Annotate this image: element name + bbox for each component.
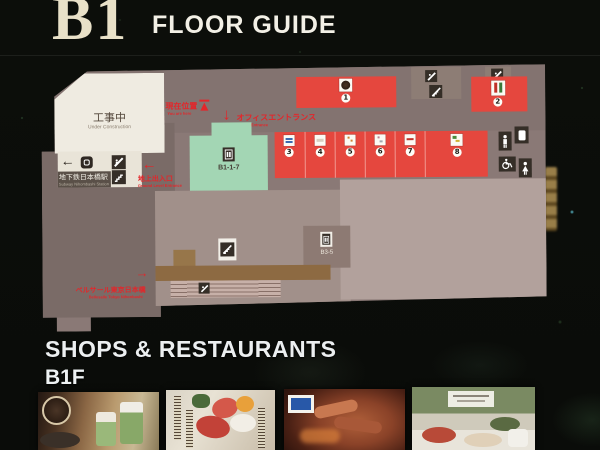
meat-strip (333, 416, 382, 435)
shop-logo-icon (315, 135, 326, 146)
stairs-icon (218, 238, 236, 260)
matcha-drink (96, 412, 116, 446)
shop-number-badge: 4 (316, 148, 325, 157)
shop-number-badge: 3 (285, 148, 294, 157)
subway-sign: ← 地下鉄日本橋駅 Subway Nihombashi Station (58, 151, 142, 188)
page-title: FLOOR GUIDE (152, 11, 337, 40)
shop-number-badge: 2 (493, 98, 502, 107)
shops-strip: 3 4 5 6 (275, 131, 488, 178)
logo-mark (348, 137, 350, 139)
shop-number-badge: 1 (341, 94, 350, 103)
subway-label-en: Subway Nihombashi Station (59, 181, 109, 186)
coin-locker-icon (515, 126, 529, 143)
shop-number-badge: 8 (453, 148, 462, 157)
dish (422, 427, 456, 443)
logo-mark (407, 138, 414, 140)
shop-logo-icon (345, 135, 356, 146)
elevator-zone: B3-5 (303, 226, 350, 268)
left-arrow-icon: ← (61, 153, 75, 169)
subway-label-band: 地下鉄日本橋駅 Subway Nihombashi Station (58, 171, 111, 187)
logo-mark (286, 141, 293, 143)
corridor-tab (173, 250, 195, 267)
elevator-zone-label: B3-5 (303, 250, 350, 256)
radish-garnish (230, 414, 256, 432)
bellesalle-label-en: Bellesalle Tokyo Nihonbashi (89, 294, 143, 299)
logo-mark (456, 140, 460, 142)
escalator-icon (112, 155, 126, 169)
cafe-logo-circle (42, 396, 71, 425)
shop-logo-icon (284, 135, 295, 146)
menu-label-strip (186, 410, 193, 448)
menu-label-strip (258, 408, 265, 448)
restaurant-logo (288, 395, 314, 413)
map-zone-lower-right (340, 178, 547, 299)
photo-restaurant-dishes (412, 387, 535, 450)
current-location-label-en: You are here (167, 111, 191, 116)
subway-logo-inner (84, 159, 90, 165)
shop-number-badge: 6 (376, 147, 385, 156)
elevator-glyph (322, 234, 330, 245)
green-area-label: B1-1-7 (190, 164, 268, 172)
ember-glow (300, 429, 340, 443)
logo-mark (378, 136, 380, 138)
leaf-garnish (192, 394, 210, 408)
escalator-icon (425, 70, 437, 82)
dish (464, 433, 502, 447)
panel-seam (0, 55, 600, 56)
floor-map: 工事中 Under Construction ← 地下鉄日本橋駅 Subway … (39, 60, 549, 336)
shop-logo-icon (375, 134, 386, 145)
logo-text-line (453, 395, 489, 397)
stairs-icon (112, 170, 126, 184)
shop-number-badge: 7 (406, 147, 415, 156)
logo-mark (291, 398, 311, 410)
footer-floor-label: B1F (45, 366, 85, 390)
shop-area-1: 1 (296, 76, 396, 108)
gold-reflection (545, 167, 557, 231)
stairs-icon (429, 85, 442, 98)
location-marker-icon (199, 100, 209, 112)
elevator-icon (223, 147, 235, 161)
ground-exit-arrow-icon: ← (142, 156, 157, 173)
shop-area-3: 3 (275, 132, 305, 178)
floor-label: B1 (52, 0, 128, 55)
logo-mark (286, 138, 293, 140)
logo-mark (494, 83, 497, 93)
mens-restroom-icon (499, 131, 512, 150)
shop-area-5: 5 (335, 132, 365, 178)
photo-cafe-tullys (38, 392, 159, 450)
coffee-shop-logo-icon (339, 79, 352, 92)
elevator-icon (320, 232, 332, 247)
shop-area-4: 4 (305, 132, 335, 178)
bellesalle-arrow-icon: → (135, 265, 148, 280)
location-marker-triangle (200, 103, 208, 111)
egg-garnish (236, 396, 254, 412)
subway-logo-icon (81, 156, 93, 168)
green-area: B1-1-7 (190, 135, 268, 191)
shop-area-7: 7 (395, 131, 425, 177)
matcha-drink (120, 402, 143, 444)
shop-logo-icon (451, 134, 463, 146)
floor-guide-sign-photo: B1 FLOOR GUIDE 工事中 Under Construction ← … (0, 0, 600, 450)
logo-mark (499, 83, 502, 93)
shop-area-8: 8 (425, 131, 488, 177)
corridor (155, 265, 330, 281)
shops-restaurants-heading: SHOPS & RESTAURANTS (45, 336, 337, 363)
shop-logo-icon (405, 134, 416, 145)
stairs-glyph (220, 242, 234, 256)
shop-area-2: 2 (471, 76, 527, 111)
shop-number-badge: 5 (346, 148, 355, 157)
escalator-icon (199, 283, 210, 294)
photo-sashimi-platter (166, 390, 275, 450)
womens-restroom-icon (519, 158, 532, 177)
ground-exit-label-en: Ground Level Entrance (138, 183, 182, 188)
shop-area-6: 6 (365, 131, 395, 177)
logo-mark (317, 139, 324, 142)
coin-locker-glyph (518, 130, 525, 140)
location-marker-bar (199, 100, 209, 102)
shop-logo-icon (491, 81, 505, 96)
wheelchair-icon (499, 156, 516, 171)
logo-mark (453, 136, 457, 139)
menu-label-strip (174, 396, 181, 440)
moving-walkway (171, 280, 281, 298)
coffee-logo-circle (341, 81, 350, 90)
food-plate (40, 432, 80, 448)
construction-label-en: Under Construction (54, 124, 164, 131)
logo-text-line (457, 400, 485, 402)
restaurant-logo (448, 391, 494, 407)
logo-mark (380, 140, 383, 142)
pot (508, 429, 528, 447)
logo-mark (351, 140, 353, 142)
photo-grilled-meat (284, 389, 405, 450)
